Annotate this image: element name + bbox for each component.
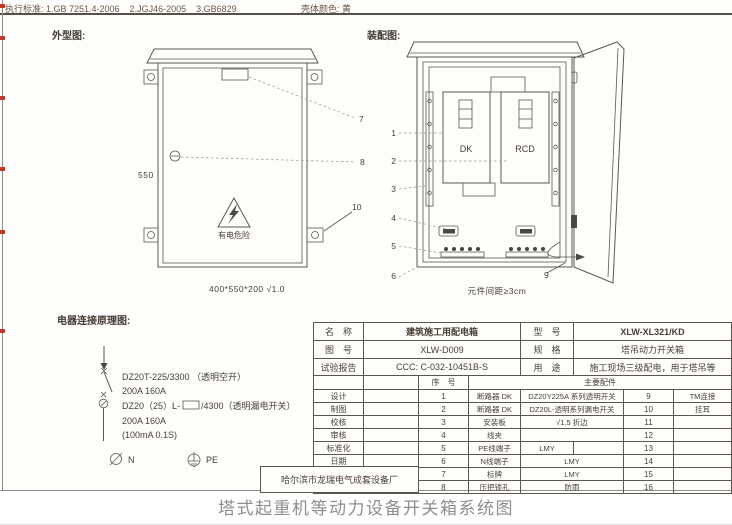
part-spec: LMY xyxy=(521,468,624,481)
lower-bracket xyxy=(463,183,495,196)
part-name: 压把锁孔 xyxy=(469,481,521,494)
part-spec: LMY xyxy=(521,455,624,468)
part-no: 6 xyxy=(419,455,469,468)
spec-label: 规 格 xyxy=(521,341,574,359)
standards-text: 执行标准: 1.GB 7251.4-2006 2.JGJ46-2005 3.GB… xyxy=(5,2,237,15)
report-value: CCC: C-032-10451B-S xyxy=(364,359,521,376)
scan-red-mark xyxy=(0,36,5,40)
page-left-edge xyxy=(2,0,3,491)
part-no2: 10 xyxy=(624,403,674,416)
part-no2: 12 xyxy=(624,429,674,442)
scan-red-mark xyxy=(0,96,5,100)
pe-label: PE xyxy=(206,455,218,465)
breaker2-model-prefix: DZ20（25）L- xyxy=(122,401,180,411)
part-no: 1 xyxy=(419,390,469,403)
part-extra xyxy=(674,468,732,481)
seq-header: 序 号 xyxy=(419,376,469,390)
company-name: 哈尔滨市龙瑞电气成套设备厂 xyxy=(260,466,419,493)
breaker1-rating: 200A 160A xyxy=(122,386,166,396)
dk-breaker: DK xyxy=(443,92,490,183)
callout-8: 8 xyxy=(360,157,365,167)
part-spec: LMY xyxy=(521,442,574,455)
callout-3: 3 xyxy=(391,184,396,194)
lock-icon xyxy=(170,151,180,161)
busbar-cover xyxy=(491,77,525,92)
use-value: 施工现场三级配电，用于塔吊等 xyxy=(574,359,732,376)
breaker2-sensitivity: (100mA 0.1S) xyxy=(122,430,177,440)
part-name: PE线端子 xyxy=(469,442,521,455)
part-extra xyxy=(674,416,732,429)
table-row: 校核 3 安装板 √1.5 折边 11 xyxy=(314,416,732,429)
breaker2-model-suffix: /4300（透明漏电开关） xyxy=(201,400,296,411)
standards-bar: 执行标准: 1.GB 7251.4-2006 2.JGJ46-2005 3.GB… xyxy=(0,0,732,15)
part-extra xyxy=(674,442,732,455)
callout-5: 5 xyxy=(391,241,396,251)
breaker-symbol xyxy=(101,368,112,397)
part-spec: √1.5 折边 xyxy=(521,416,624,429)
callout-leaders xyxy=(399,133,565,277)
part-spec: 防雨 xyxy=(521,481,624,494)
schematic-drawing: DZ20T-225/3300 （透明空开） 200A 160A DZ20（25）… xyxy=(50,300,320,478)
part-name: 断路器 DK xyxy=(469,403,521,416)
part-name: N线端子 xyxy=(469,455,521,468)
name-plate xyxy=(222,69,248,80)
sign-space xyxy=(364,442,419,455)
part-spec xyxy=(521,429,624,442)
table-row: 制图 2 断路器 DK DZ20L-透明系列漏电开关 10 挂耳 xyxy=(314,403,732,416)
scan-red-mark xyxy=(0,167,5,171)
cable-gland-slots xyxy=(439,226,535,236)
spacing-note: 元件间距≥3cm xyxy=(468,286,527,296)
table-row: 审核 4 线夹 12 xyxy=(314,429,732,442)
table-row: 设计 1 断路器 DK DZ20Y225A 系列透明开关 9 TM连接 xyxy=(314,390,732,403)
part-extra xyxy=(674,481,732,494)
model-label: 型 号 xyxy=(521,323,574,341)
part-no2: 15 xyxy=(624,468,674,481)
height-dimension: 550 xyxy=(138,170,154,180)
empty-cell xyxy=(574,442,624,455)
sign-label: 制图 xyxy=(314,403,364,416)
rcd-breaker: RCD xyxy=(501,92,549,183)
scan-red-mark xyxy=(0,4,5,8)
part-spec: DZ20Y225A 系列透明开关 xyxy=(521,390,624,403)
open-door xyxy=(571,42,624,283)
sign-label: 设计 xyxy=(314,390,364,403)
part-no2: 11 xyxy=(624,416,674,429)
report-label: 试验报告 xyxy=(314,359,364,376)
n-label: N xyxy=(128,455,135,465)
rcd-label: RCD xyxy=(515,144,535,154)
part-name: 线夹 xyxy=(469,429,521,442)
part-extra xyxy=(674,455,732,468)
table-row: 标准化 5 PE线端子 LMY 13 xyxy=(314,442,732,455)
scan-red-mark xyxy=(0,329,5,333)
sign-space xyxy=(364,403,419,416)
drawing-no-value: XLW-D009 xyxy=(364,341,521,359)
size-note: 400*550*200 √1.0 xyxy=(209,284,285,294)
part-name: 安装板 xyxy=(469,416,521,429)
part-no: 5 xyxy=(419,442,469,455)
cabinet-roof xyxy=(407,42,584,57)
breaker1-model: DZ20T-225/3300 （透明空开） xyxy=(122,371,246,382)
part-no: 3 xyxy=(419,416,469,429)
part-no: 8 xyxy=(419,481,469,494)
name-value: 建筑施工用配电箱 xyxy=(364,323,521,341)
empty-cell xyxy=(314,376,364,390)
image-caption: 塔式起重机等动力设备开关箱系统图 xyxy=(0,494,732,519)
empty-cell xyxy=(364,376,419,390)
warning-text: 有电危险 xyxy=(218,230,250,240)
model-value: XLW-XL321/KD xyxy=(574,323,732,341)
part-extra: TM连接 xyxy=(674,390,732,403)
callout-4: 4 xyxy=(391,213,396,223)
callout-6: 6 xyxy=(391,271,396,281)
pe-terminal-icon xyxy=(188,452,200,467)
part-extra xyxy=(674,429,732,442)
part-name: 标牌 xyxy=(469,468,521,481)
callout-7: 7 xyxy=(359,114,364,124)
part-no2: 14 xyxy=(624,455,674,468)
sign-label: 标准化 xyxy=(314,442,364,455)
part-no: 2 xyxy=(419,403,469,416)
part-no: 4 xyxy=(419,429,469,442)
part-no: 7 xyxy=(419,468,469,481)
supply-arrow-icon xyxy=(101,346,108,370)
rcd-symbol xyxy=(99,399,108,408)
part-no2: 9 xyxy=(624,390,674,403)
shell-color-text: 壳体颜色: 黄 xyxy=(301,2,351,15)
model-blank-box xyxy=(183,401,199,409)
callout-10: 10 xyxy=(352,202,362,212)
sign-space xyxy=(364,416,419,429)
part-extra: 挂耳 xyxy=(674,403,732,416)
dk-label: DK xyxy=(460,144,473,154)
spec-value: 塔吊动力开关箱 xyxy=(574,341,732,359)
assembly-drawing: DK RCD xyxy=(366,36,632,298)
sign-label: 校核 xyxy=(314,416,364,429)
outline-section-title: 外型图: xyxy=(52,27,85,42)
sign-space xyxy=(364,390,419,403)
callout-leaders xyxy=(181,77,356,231)
sign-space xyxy=(364,429,419,442)
part-no2: 16 xyxy=(624,481,674,494)
door-handle xyxy=(571,215,577,228)
name-label: 名 称 xyxy=(314,323,364,341)
part-no2: 13 xyxy=(624,442,674,455)
callout-1: 1 xyxy=(391,128,396,138)
breaker2-rating: 200A 160A xyxy=(122,416,166,426)
high-voltage-warning-icon xyxy=(218,198,250,227)
mounting-rails xyxy=(426,92,559,206)
terminal-strips xyxy=(441,247,548,257)
outline-drawing: 有电危险 550 400*550*200 √1.0 7 8 10 xyxy=(128,36,378,298)
scan-red-mark xyxy=(0,230,5,234)
cabinet-roof xyxy=(147,49,318,63)
part-name: 断路器 DK xyxy=(469,390,521,403)
callout-9: 9 xyxy=(544,270,549,280)
drawing-no-label: 图 号 xyxy=(314,341,364,359)
use-label: 用 途 xyxy=(521,359,574,376)
n-terminal-icon xyxy=(110,453,122,465)
sign-label: 审核 xyxy=(314,429,364,442)
parts-header: 主要配件 xyxy=(469,376,732,390)
part-spec: DZ20L-透明系列漏电开关 xyxy=(521,403,624,416)
callout-2: 2 xyxy=(391,156,396,166)
drawing-sheet: 执行标准: 1.GB 7251.4-2006 2.JGJ46-2005 3.GB… xyxy=(0,0,732,491)
drawing-page: 执行标准: 1.GB 7251.4-2006 2.JGJ46-2005 3.GB… xyxy=(0,0,732,525)
